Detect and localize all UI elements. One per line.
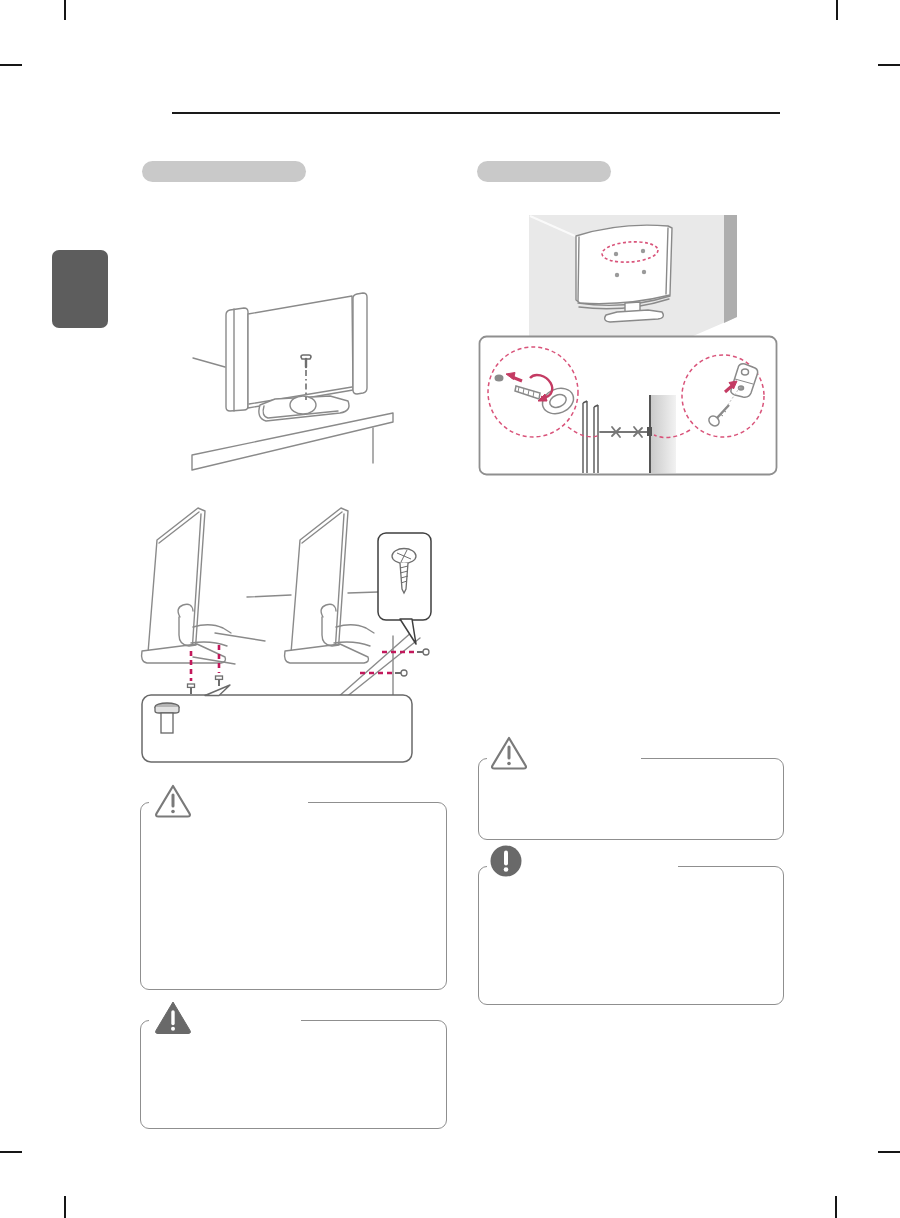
- wall-band: [650, 395, 676, 473]
- figure-stand-screws: [135, 505, 460, 767]
- left-caution-box: [140, 802, 447, 990]
- crop-mark-top-left-h: [0, 64, 22, 66]
- warning-triangle-filled-icon: [153, 999, 193, 1035]
- caution-triangle-outline-icon: [153, 782, 193, 818]
- crop-mark-top-right-v: [836, 0, 838, 20]
- figure-tether-detail: [478, 335, 778, 476]
- caution-triangle-outline-icon: [489, 734, 529, 770]
- crop-mark-top-left-v: [64, 0, 66, 20]
- wall-dark-band: [724, 215, 737, 323]
- right-section-heading-pill: [477, 161, 611, 182]
- table-back-edge: [193, 358, 225, 367]
- crop-mark-bottom-left-h: [0, 1151, 22, 1153]
- bolt-callout-box: [142, 685, 412, 762]
- figure-tv-wall-holes: [520, 200, 750, 350]
- figure-tv-on-table: [160, 270, 460, 490]
- stand-screw-hole: [290, 396, 316, 414]
- right-note-box: [478, 866, 784, 1005]
- left-warning-box: [140, 1020, 447, 1129]
- crop-mark-bottom-right-v: [835, 1196, 837, 1218]
- table-top-edge: [192, 413, 393, 470]
- crop-mark-bottom-left-v: [64, 1196, 66, 1218]
- crop-mark-bottom-right-h: [878, 1151, 900, 1153]
- side-edge-tab: [52, 250, 108, 328]
- right-caution-box: [478, 758, 784, 840]
- left-section-heading-pill: [142, 161, 306, 182]
- header-rule: [172, 112, 780, 114]
- crop-mark-top-right-h: [878, 64, 900, 66]
- note-circle-filled-icon: [489, 844, 523, 878]
- detail-frame: [480, 337, 777, 475]
- manual-page: [0, 0, 900, 1218]
